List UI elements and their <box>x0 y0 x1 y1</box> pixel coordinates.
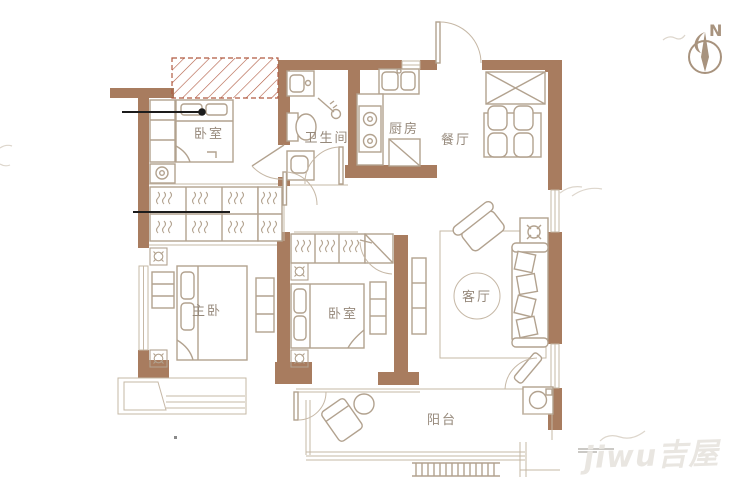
balcony-door-living <box>505 352 543 389</box>
armchair <box>451 200 509 256</box>
room-label-kitchen: 厨房 <box>389 121 419 137</box>
north-arrow-compass: N <box>689 21 722 73</box>
railing <box>412 463 500 476</box>
hatched-shaft-area <box>172 58 278 98</box>
floorplan-page: 卧室 卫生间 厨房 餐厅 主卧 卧室 客厅 阳台 N jiwu吉屋 <box>0 0 740 493</box>
side-table <box>354 394 374 414</box>
compass-needle <box>701 32 709 72</box>
balcony-elements <box>306 387 560 477</box>
room-label-living-room: 客厅 <box>462 289 492 305</box>
bay-window <box>118 378 246 439</box>
living-room-furniture <box>412 200 548 358</box>
tv-cabinet <box>412 258 426 334</box>
room-label-bedroom-top: 卧室 <box>194 126 224 142</box>
floorplan-drawing: 卧室 卫生间 厨房 餐厅 主卧 卧室 客厅 阳台 N jiwu吉屋 <box>0 0 740 493</box>
entry-door <box>436 22 481 63</box>
room-label-master-bedroom: 主卧 <box>192 304 222 319</box>
compass-north-label: N <box>709 21 722 40</box>
bathroom-furniture <box>287 71 341 180</box>
room-label-bathroom: 卫生间 <box>304 131 349 146</box>
sofa <box>512 243 548 347</box>
kitchen-furniture <box>357 69 420 166</box>
room-label-balcony: 阳台 <box>427 413 457 428</box>
bedroom-middle-furniture <box>291 234 393 367</box>
room-label-dining: 餐厅 <box>441 132 471 148</box>
closet <box>150 187 282 241</box>
room-label-bedroom-middle: 卧室 <box>328 306 358 322</box>
plant-box <box>520 218 548 246</box>
dining-furniture <box>484 72 545 157</box>
bedroom-top-door <box>252 145 284 179</box>
kitchen-counter <box>357 94 383 165</box>
shower-wand <box>318 98 334 112</box>
jiwu-watermark: jiwu吉屋 <box>579 436 723 476</box>
